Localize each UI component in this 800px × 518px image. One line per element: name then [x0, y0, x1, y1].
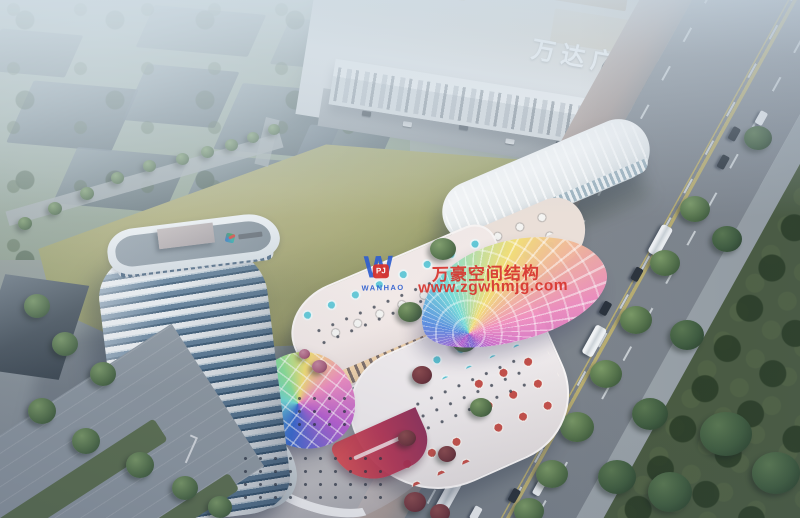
tree	[670, 320, 704, 350]
tree	[632, 398, 668, 430]
tree	[712, 226, 742, 252]
tree	[680, 196, 710, 222]
tree	[208, 496, 232, 518]
tree	[172, 476, 198, 500]
people-specks	[238, 452, 388, 508]
tree	[52, 332, 78, 356]
watermark-logo-badge: PJ	[373, 264, 389, 278]
tree	[404, 492, 426, 512]
tree	[143, 160, 156, 172]
tree	[590, 360, 622, 388]
tree	[126, 452, 154, 478]
mall-roof-patch	[347, 0, 474, 1]
tree	[470, 398, 492, 417]
tree	[176, 153, 189, 165]
car	[403, 121, 413, 127]
watermark-logo-caption: WANHAO	[360, 283, 406, 293]
tree	[438, 446, 456, 462]
tree	[72, 428, 100, 454]
tree	[744, 126, 772, 150]
tree	[111, 172, 124, 184]
watermark-line2: www.zgwhmjg.com	[418, 277, 568, 298]
tree	[225, 139, 238, 151]
people-specks	[292, 392, 356, 434]
tree	[90, 362, 116, 386]
tree	[700, 412, 752, 456]
car	[505, 138, 515, 144]
tree	[620, 306, 652, 334]
tree	[514, 498, 544, 518]
tree	[18, 217, 32, 230]
watermark-logo: W PJ WANHAO	[360, 255, 407, 302]
tree	[650, 250, 680, 276]
tree	[48, 202, 62, 215]
tree	[24, 294, 50, 318]
aerial-rendering: 万达广场	[0, 0, 800, 518]
tree	[28, 398, 56, 424]
tree	[752, 452, 800, 494]
tree	[412, 366, 432, 384]
tree	[398, 302, 422, 322]
tree	[598, 460, 636, 494]
watermark: W PJ WANHAO 万豪空间结构 www.zgwhmjg.com	[360, 250, 551, 305]
tree	[268, 124, 280, 135]
tree	[648, 472, 692, 512]
tree	[299, 349, 310, 359]
tree	[247, 132, 259, 143]
tree	[312, 360, 327, 373]
tree	[536, 460, 568, 488]
tree	[201, 146, 214, 158]
car	[362, 111, 372, 117]
tree	[430, 504, 450, 518]
tree	[398, 430, 416, 446]
tower-logo-text	[238, 232, 262, 240]
tree	[80, 187, 94, 200]
